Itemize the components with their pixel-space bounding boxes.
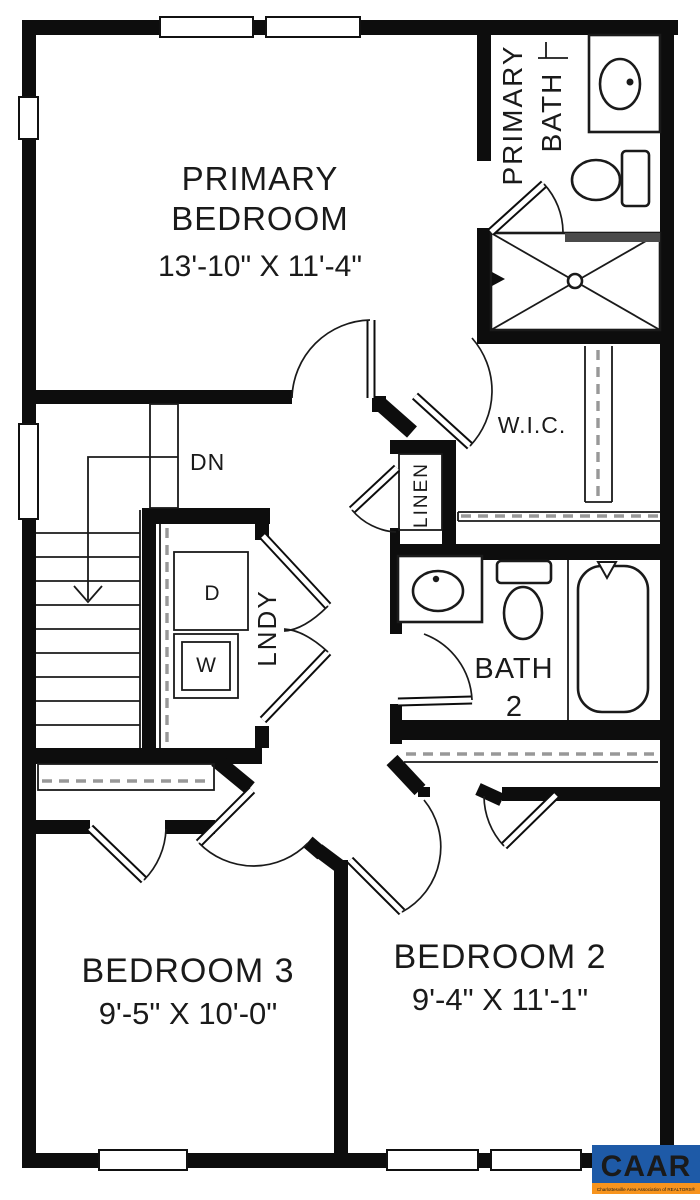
primary-bath-label: PRIMARY BATH	[497, 44, 567, 185]
svg-text:BEDROOM 2: BEDROOM 2	[393, 938, 606, 976]
svg-text:13'-10" X 11'-4": 13'-10" X 11'-4"	[158, 250, 362, 283]
floor-plan-drawing: DN PRIMARY BATH	[0, 0, 700, 1200]
faucet2-icon	[433, 576, 439, 582]
caar-logo-text: CAAR	[601, 1150, 692, 1183]
washer-label: W	[196, 654, 216, 677]
bath2: BATH 2	[398, 556, 648, 723]
linen-label: LINEN	[411, 462, 432, 528]
svg-text:BATH: BATH	[474, 653, 553, 685]
window-bedroom2-2	[491, 1150, 581, 1170]
bedroom3-label: BEDROOM 3 9'-5" X 10'-0"	[81, 952, 294, 1031]
primary-bedroom-label: PRIMARY BEDROOM 13'-10" X 11'-4"	[158, 160, 362, 283]
stair-railing	[150, 404, 178, 508]
wic-door	[415, 338, 492, 446]
bathtub-icon	[568, 560, 648, 720]
primary-bedroom-door	[292, 320, 371, 398]
window-bedroom2-1	[387, 1150, 478, 1170]
svg-text:PRIMARY: PRIMARY	[497, 44, 528, 185]
window-top-2	[266, 17, 360, 37]
bedroom2-door	[350, 800, 441, 912]
svg-text:2: 2	[506, 691, 522, 723]
bath2-label: BATH 2	[474, 653, 553, 723]
svg-text:9'-5" X 10'-0": 9'-5" X 10'-0"	[99, 996, 278, 1031]
svg-text:BEDROOM: BEDROOM	[171, 200, 349, 237]
stairs: DN	[36, 404, 225, 748]
svg-text:PRIMARY: PRIMARY	[182, 160, 339, 197]
primary-bath: PRIMARY BATH	[491, 35, 660, 330]
dryer-label: D	[204, 582, 219, 605]
floor-plan-page: DN PRIMARY BATH	[0, 0, 700, 1200]
svg-text:BEDROOM 3: BEDROOM 3	[81, 952, 294, 990]
window-bedroom3	[99, 1150, 187, 1170]
window-top-1	[160, 17, 253, 37]
window-left-1	[19, 97, 38, 139]
linen-closet: LINEN	[352, 454, 442, 532]
bedroom3-closet-door	[90, 828, 166, 880]
laundry: D W LNDY	[160, 524, 328, 748]
bedroom2-label: BEDROOM 2 9'-4" X 11'-1"	[393, 938, 606, 1017]
stairs-dn-label: DN	[190, 449, 225, 475]
caar-logo: CAAR Charlottesville Area Association of…	[592, 1145, 700, 1194]
svg-text:9'-4" X 11'-1": 9'-4" X 11'-1"	[412, 982, 588, 1017]
shower-icon	[491, 233, 660, 330]
faucet-icon	[627, 79, 634, 86]
primary-bath-door	[491, 184, 563, 232]
svg-text:BATH: BATH	[536, 72, 567, 153]
toilet-icon	[572, 151, 649, 206]
caar-logo-tagline: Charlottesville Area Association of REAL…	[597, 1186, 696, 1192]
bath2-door	[398, 634, 472, 702]
linen-door	[352, 468, 397, 532]
towel-bar-icon	[538, 42, 568, 58]
bedroom3-door	[199, 790, 308, 866]
laundry-label: LNDY	[252, 589, 282, 666]
primary-bedroom: PRIMARY BEDROOM 13'-10" X 11'-4"	[158, 160, 371, 398]
toilet2-icon	[497, 561, 551, 639]
sink-icon	[600, 59, 640, 109]
wic-label: W.I.C.	[498, 412, 567, 438]
window-left-2	[19, 424, 38, 519]
